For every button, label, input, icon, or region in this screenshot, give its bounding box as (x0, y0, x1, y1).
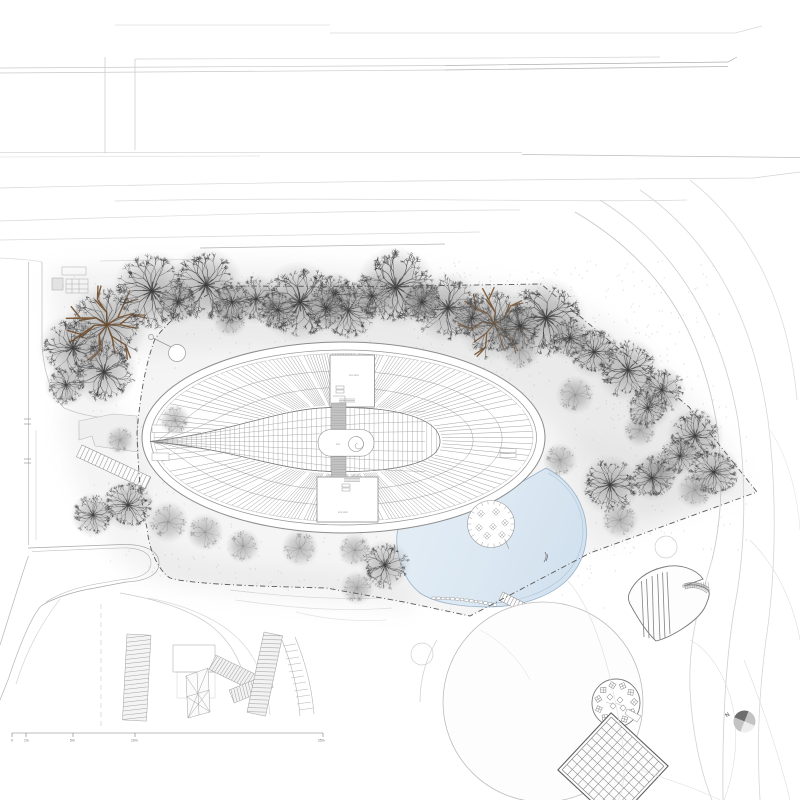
svg-text:10m: 10m (131, 739, 138, 743)
svg-text:0: 0 (11, 739, 13, 743)
svg-text:25m: 25m (318, 739, 325, 743)
svg-text:1m: 1m (24, 739, 29, 743)
svg-text:xxx xxxx: xxx xxxx (338, 511, 349, 514)
svg-text:xxx xxxx: xxx xxxx (349, 374, 360, 377)
svg-text:5m: 5m (70, 739, 75, 743)
